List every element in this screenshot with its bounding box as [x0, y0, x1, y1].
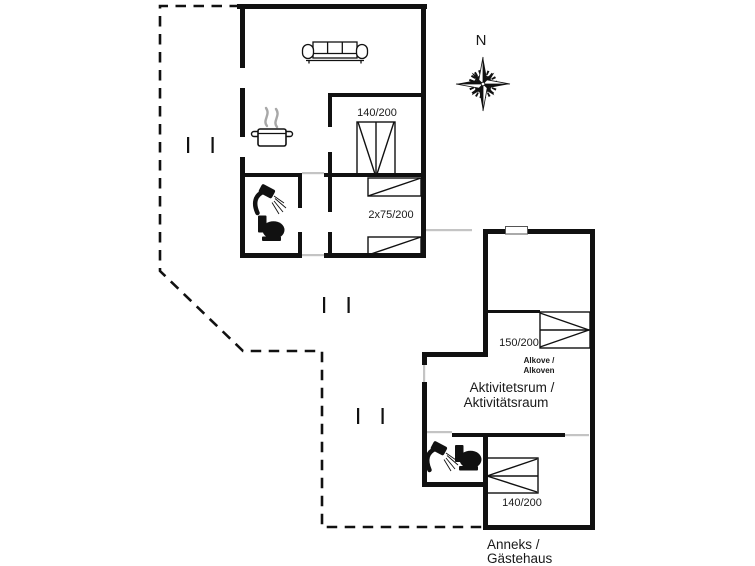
toilet-icon-main: [258, 216, 285, 242]
terrace-step-marks: [187, 137, 384, 424]
bed-label-main-double: 140/200: [357, 107, 397, 119]
annex-window: [506, 227, 528, 235]
shower-icon-main: [255, 184, 286, 214]
compass-rose-icon: [456, 57, 510, 111]
floor-plan: N 140/200 2x75/200 150/200 Alkove / Alko…: [0, 0, 755, 566]
bed-annex: [486, 458, 538, 493]
floor-plan-drawing: N 140/200 2x75/200 150/200 Alkove / Alko…: [0, 0, 755, 566]
compass-label: N: [476, 32, 487, 49]
bed-main-double: [357, 122, 395, 175]
alkove-label-line1: Alkove /: [524, 356, 555, 365]
cooking-pot-icon: [252, 108, 293, 146]
annex-caption-line2: Gästehaus: [487, 551, 553, 566]
activity-room-label-line1: Aktivitetsrum /: [470, 380, 555, 395]
sofa-icon: [303, 42, 368, 64]
activity-room-label-line2: Aktivitätsraum: [464, 395, 549, 410]
annex-caption-line1: Anneks /: [487, 537, 540, 552]
bed-alkove: [540, 312, 590, 348]
alkove-label-line2: Alkoven: [523, 366, 554, 375]
bed-label-annex: 140/200: [502, 497, 542, 509]
shower-icon-annex: [427, 441, 458, 471]
bed-label-alkove: 150/200: [499, 337, 539, 349]
bed-label-main-singles: 2x75/200: [368, 209, 413, 221]
toilet-icon-annex: [455, 445, 482, 471]
